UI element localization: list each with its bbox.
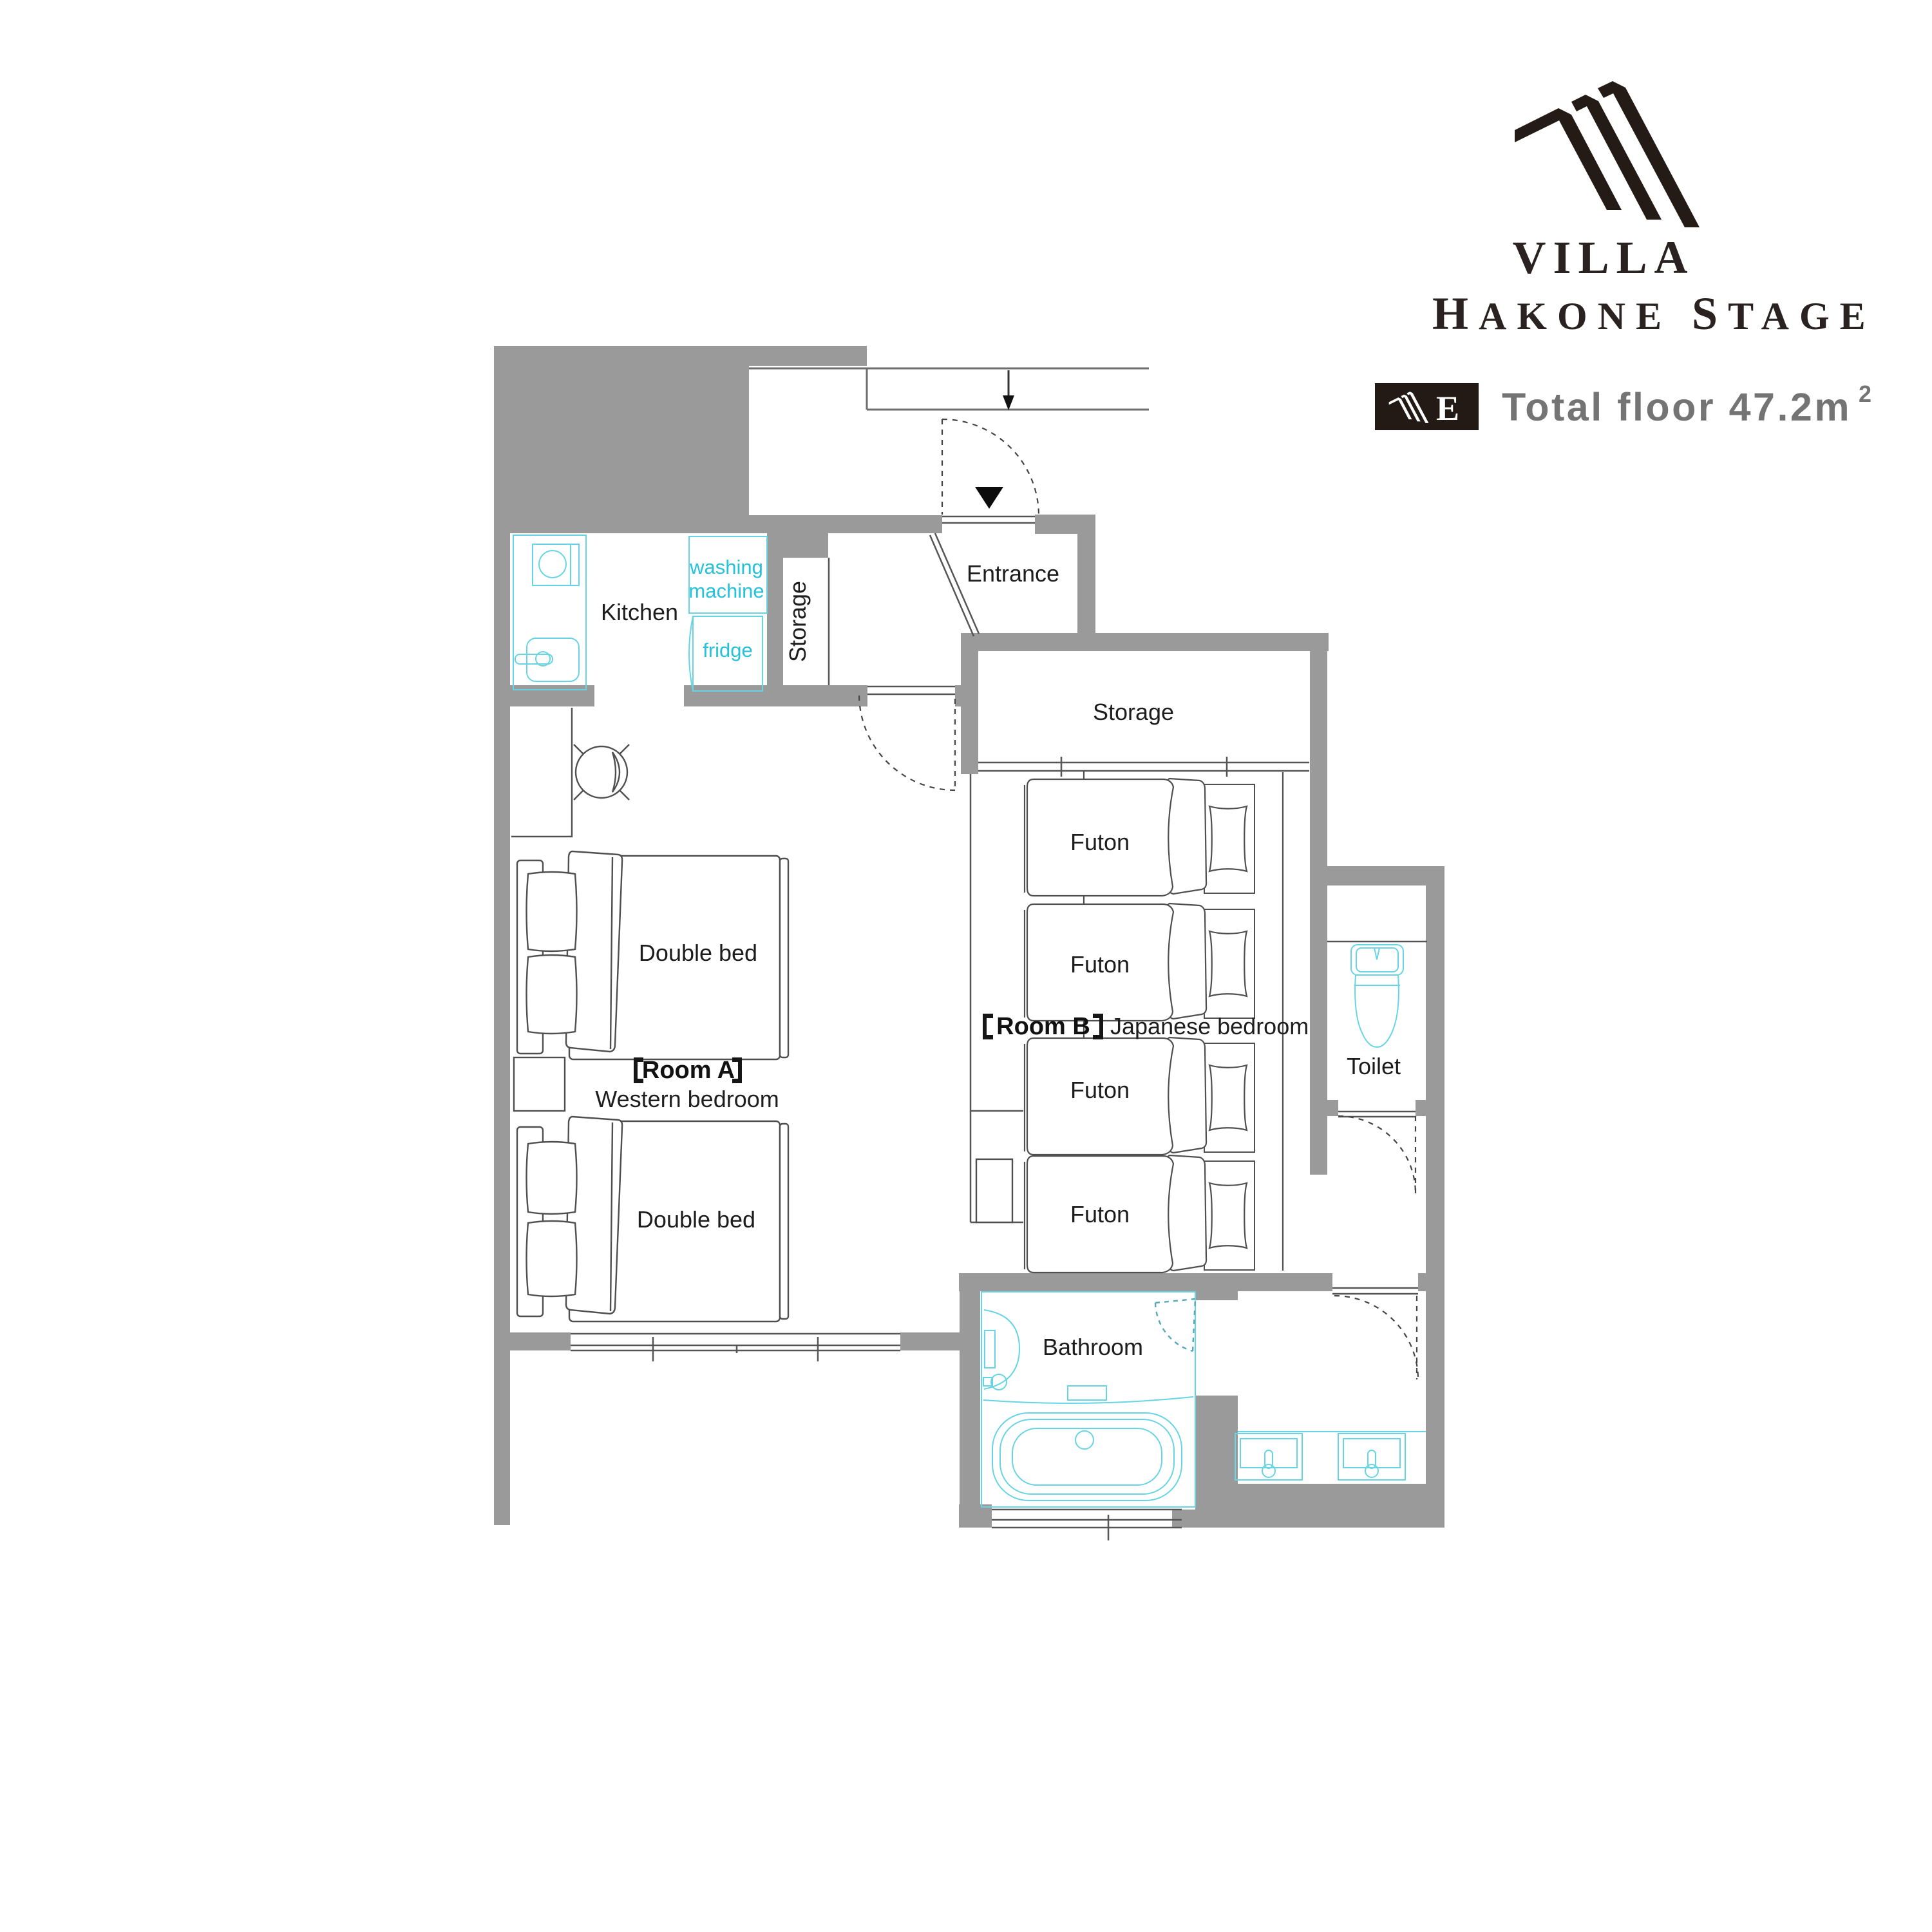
svg-text:E: E [1436, 389, 1459, 428]
svg-text:Double bed: Double bed [639, 940, 757, 966]
svg-text:Room B: Room B [996, 1013, 1090, 1040]
svg-text:Double bed: Double bed [637, 1206, 755, 1233]
svg-text:Futon: Futon [1070, 951, 1130, 978]
svg-text:Storage: Storage [784, 581, 811, 662]
svg-text:Entrance: Entrance [967, 560, 1059, 587]
svg-text:Storage: Storage [1093, 699, 1174, 725]
svg-text:Bathroom: Bathroom [1043, 1334, 1143, 1360]
svg-text:Western bedroom: Western bedroom [595, 1086, 779, 1112]
svg-text:Futon: Futon [1070, 1201, 1130, 1227]
svg-text:Kitchen: Kitchen [601, 599, 678, 625]
svg-text:2: 2 [1859, 381, 1871, 407]
svg-text:machine: machine [688, 580, 764, 602]
svg-text:Total floor 47.2m: Total floor 47.2m [1502, 385, 1851, 429]
svg-text:washing: washing [689, 556, 763, 578]
svg-text:VILLA: VILLA [1512, 232, 1694, 283]
svg-text:fridge: fridge [703, 639, 753, 661]
svg-text:HAKONE STAGE: HAKONE STAGE [1432, 288, 1876, 339]
svg-text:Toilet: Toilet [1347, 1053, 1401, 1079]
svg-text:Futon: Futon [1070, 1077, 1130, 1103]
svg-text:Futon: Futon [1070, 829, 1130, 855]
svg-text:Japanese bedroom: Japanese bedroom [1110, 1013, 1309, 1039]
svg-text:Room A: Room A [642, 1057, 735, 1084]
